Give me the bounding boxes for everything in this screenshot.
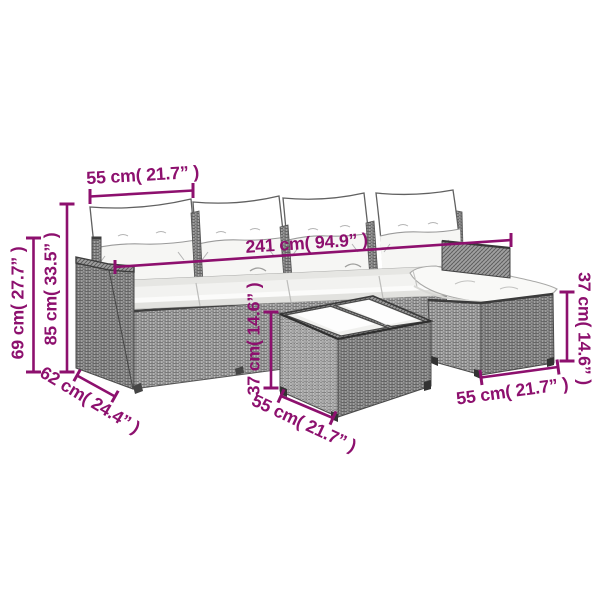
svg-text:69 cm( 27.7” ): 69 cm( 27.7” ) [8,246,28,359]
svg-text:85 cm( 33.5” ): 85 cm( 33.5” ) [41,232,61,345]
svg-text:37 cm( 14.6” ): 37 cm( 14.6” ) [244,282,264,395]
svg-text:37 cm( 14.6” ): 37 cm( 14.6” ) [575,272,595,385]
